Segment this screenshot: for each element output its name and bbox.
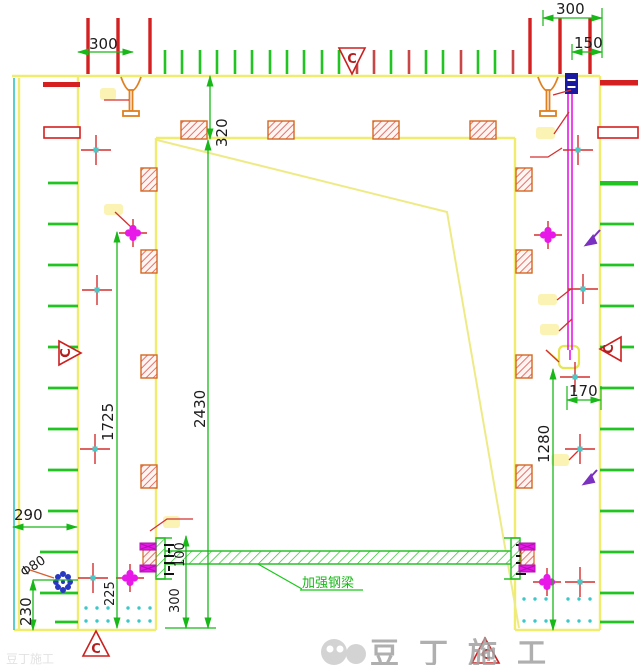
beam-callout: 加强钢梁: [258, 564, 363, 591]
dim-290: 290: [14, 506, 43, 524]
dim-230: 230: [17, 597, 35, 626]
left-ticks: [40, 183, 78, 622]
dim-1280: 1280: [535, 425, 553, 463]
dim-225: 225: [103, 581, 118, 606]
section-marker-bottom-left: C: [91, 642, 101, 657]
right-green-bar: [600, 181, 638, 186]
sleeve-flower: [53, 571, 73, 593]
section-marker-top: C: [347, 52, 357, 67]
dim-100: 100: [173, 542, 188, 567]
clamp-arrows: [584, 230, 600, 484]
watermark-text-partial: 豆丁施工: [6, 652, 54, 665]
drawing-canvas: 300 300 150 320 2430 1725 225 290 230 Φ8…: [0, 0, 640, 665]
watermark-logo: [321, 639, 366, 665]
tie-anchor-plate: [559, 346, 579, 368]
hatched-blockouts: [141, 121, 532, 488]
dim-2430: 2430: [191, 390, 209, 428]
watermark-text: 豆丁施工: [370, 636, 566, 665]
right-ticks: [600, 224, 634, 622]
rebar-bars: [43, 18, 638, 138]
steel-beam: [140, 538, 535, 579]
dim-320: 320: [213, 118, 231, 147]
beam-label: 加强钢梁: [302, 576, 354, 591]
tie-stars: [122, 225, 556, 590]
section-marker-right: C: [602, 344, 617, 354]
dim-300-bottom: 300: [168, 588, 183, 613]
dim-300-top-left: 300: [89, 35, 118, 53]
prop-symbols: [121, 77, 558, 116]
construction-drawing-svg: 300 300 150 320 2430 1725 225 290 230 Φ8…: [0, 0, 640, 665]
dim-170: 170: [569, 382, 598, 400]
callout-leaders: [100, 88, 581, 531]
dim-1725: 1725: [99, 403, 117, 441]
section-marker-left: C: [59, 348, 74, 358]
dim-300-top-right: 300: [556, 0, 585, 18]
dim-150: 150: [574, 34, 603, 52]
dim-phi80: Φ80: [18, 553, 49, 580]
